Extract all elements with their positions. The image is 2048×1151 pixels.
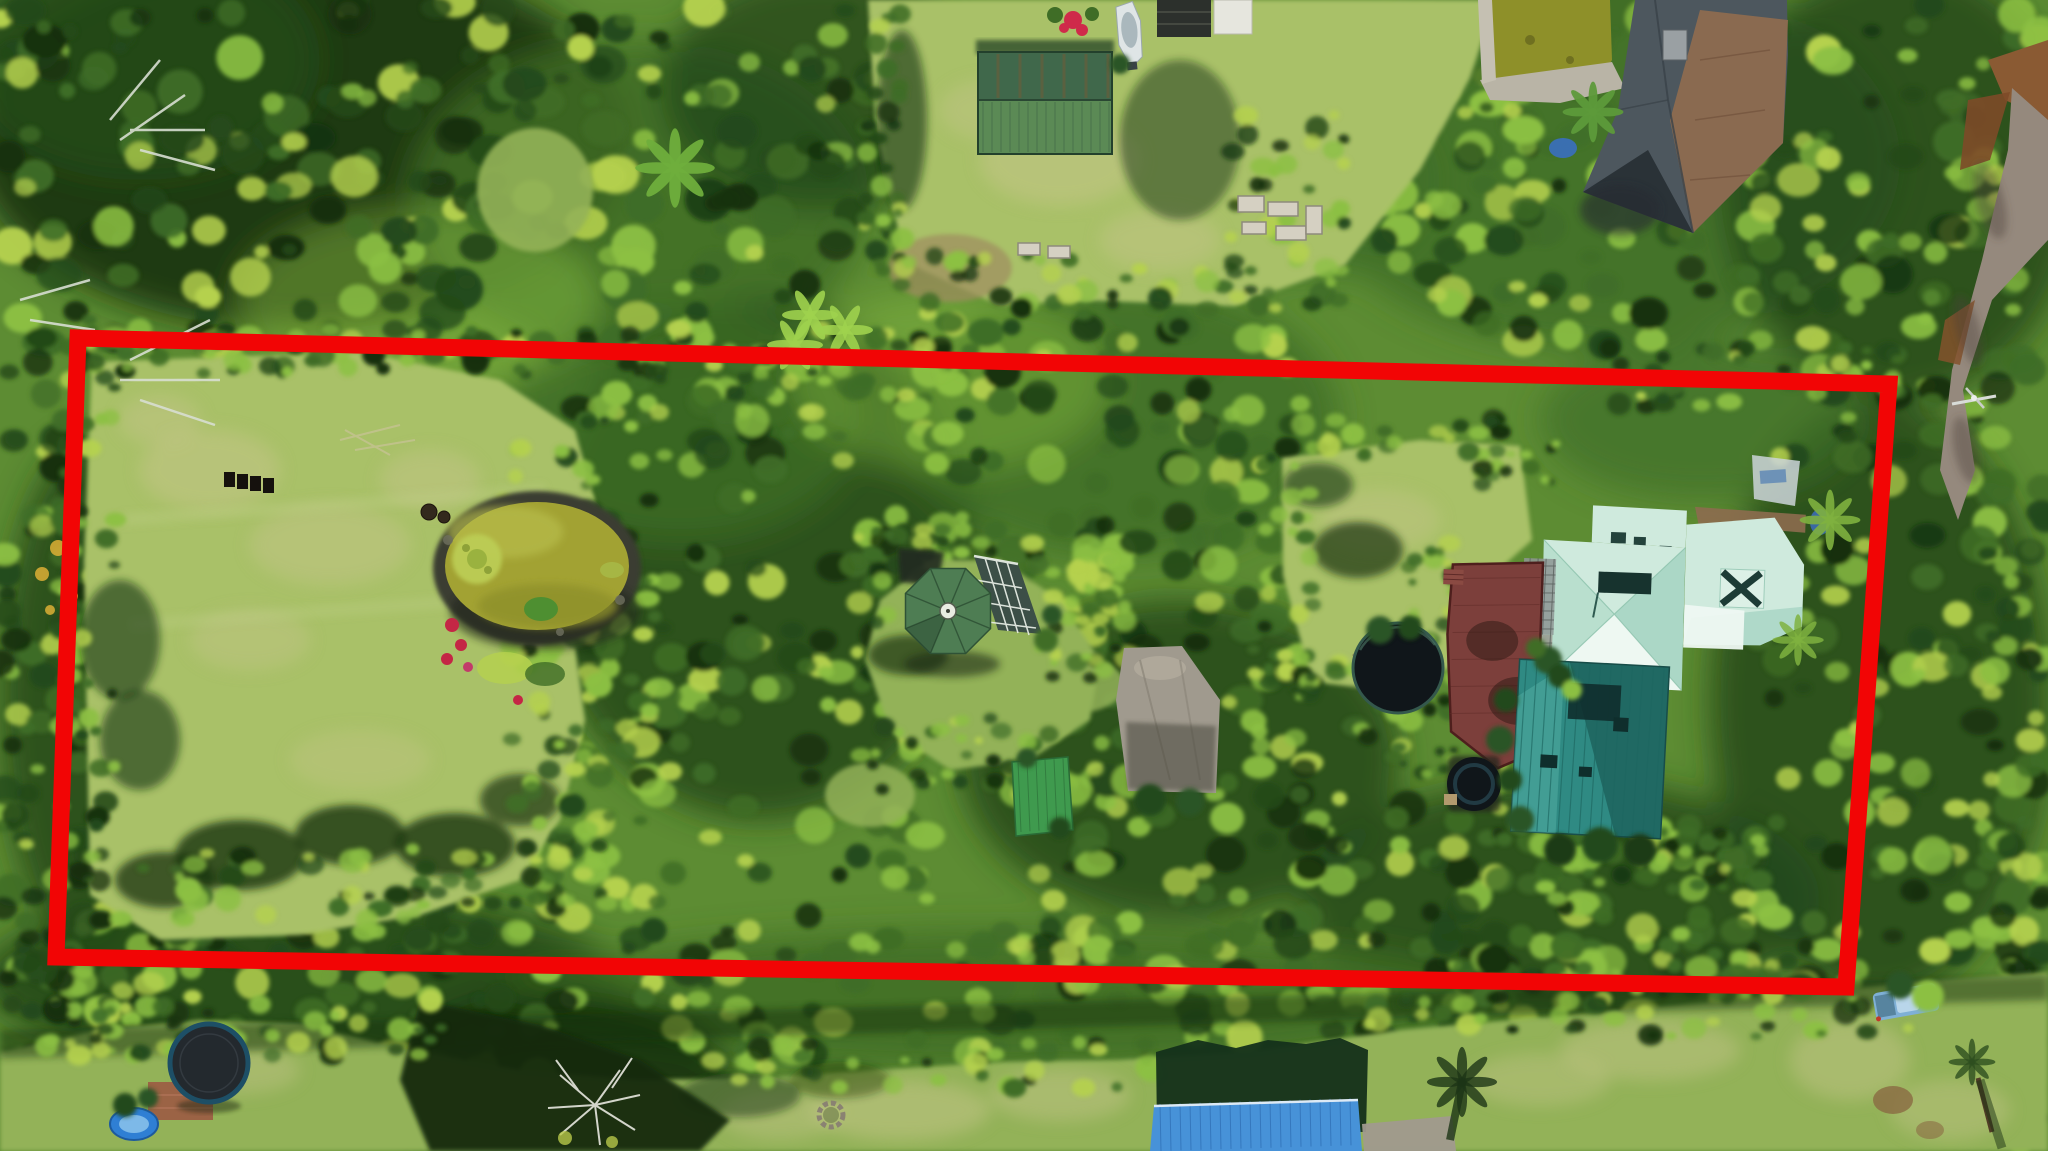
foliage-blob bbox=[1594, 907, 1614, 924]
foliage-blob bbox=[930, 1074, 947, 1086]
foliage-blob bbox=[781, 374, 799, 391]
foliage-blob bbox=[1242, 755, 1276, 778]
foliage-blob bbox=[1754, 1003, 1776, 1020]
foliage-blob bbox=[718, 707, 741, 725]
mow-patch bbox=[1100, 210, 1220, 270]
foliage-blob bbox=[1833, 999, 1859, 1024]
foliage-blob bbox=[654, 622, 671, 634]
foliage-blob bbox=[1270, 506, 1288, 523]
foliage-blob bbox=[1095, 662, 1114, 679]
foliage-blob bbox=[1292, 759, 1317, 779]
foliage-blob bbox=[152, 997, 174, 1016]
stair-step bbox=[1443, 579, 1463, 580]
foliage-blob bbox=[2015, 648, 2043, 670]
foliage-blob bbox=[1983, 772, 1999, 787]
foliage-blob bbox=[919, 893, 935, 904]
tree-shadow bbox=[100, 690, 180, 790]
foliage-blob bbox=[1320, 1019, 1346, 1040]
foliage-blob bbox=[694, 435, 731, 469]
foliage-blob bbox=[358, 89, 377, 106]
foliage-blob bbox=[1636, 392, 1647, 400]
foliage-blob bbox=[2016, 816, 2034, 830]
foliage-blob bbox=[1169, 893, 1187, 906]
foliage-blob bbox=[1221, 696, 1236, 708]
foliage-blob bbox=[807, 142, 831, 161]
foliage-blob bbox=[254, 245, 268, 258]
foliage-blob bbox=[1911, 669, 1926, 680]
foliage-blob bbox=[873, 572, 892, 589]
foliage-blob bbox=[1677, 256, 1706, 281]
foliage-blob bbox=[255, 905, 276, 924]
bush bbox=[1047, 7, 1063, 23]
foliage-blob bbox=[860, 120, 875, 132]
foliage-blob bbox=[1898, 49, 1918, 63]
foliage-blob bbox=[1840, 412, 1856, 423]
foliage-blob bbox=[95, 529, 118, 548]
foliage-blob bbox=[875, 718, 896, 737]
foliage-blob bbox=[237, 177, 267, 201]
foliage-blob bbox=[1450, 747, 1459, 753]
foliage-blob bbox=[396, 910, 412, 925]
foliage-blob bbox=[871, 527, 881, 536]
foliage-blob bbox=[1732, 355, 1746, 366]
foliage-blob bbox=[582, 93, 601, 107]
foliage-blob bbox=[1210, 802, 1244, 834]
gazebo-ground-shadow bbox=[904, 651, 1000, 677]
foliage-blob bbox=[1816, 147, 1841, 171]
foliage-blob bbox=[989, 287, 1012, 305]
foliage-blob bbox=[91, 1042, 110, 1059]
foliage-blob bbox=[1304, 598, 1321, 611]
foliage-blob bbox=[1838, 341, 1852, 354]
foliage-blob bbox=[658, 762, 682, 781]
foliage-blob bbox=[1002, 1078, 1026, 1098]
foliage-blob bbox=[851, 646, 864, 659]
foliage-blob bbox=[991, 723, 1012, 739]
foliage-blob bbox=[1136, 1038, 1154, 1051]
foliage-blob bbox=[1499, 465, 1513, 476]
foliage-blob bbox=[1803, 1021, 1828, 1040]
shed-roof-lower bbox=[978, 101, 1112, 154]
foliage-blob bbox=[630, 453, 650, 469]
gazebo-finial bbox=[946, 609, 950, 613]
foliage-blob bbox=[1399, 760, 1407, 767]
foliage-blob bbox=[1291, 396, 1311, 413]
foliage-blob bbox=[891, 79, 909, 96]
foliage-blob bbox=[108, 761, 120, 773]
foliage-blob bbox=[1290, 461, 1299, 470]
foliage-blob bbox=[303, 853, 314, 861]
foliage-blob bbox=[1363, 1017, 1376, 1030]
foliage-blob bbox=[1107, 290, 1118, 301]
foliage-blob bbox=[1425, 546, 1437, 556]
foliage-blob bbox=[880, 387, 897, 403]
foliage-blob bbox=[893, 278, 910, 291]
foliage-blob bbox=[1986, 739, 2003, 751]
foliage-blob bbox=[1288, 822, 1327, 851]
foliage-blob bbox=[1929, 214, 1971, 245]
red-flowers bbox=[441, 653, 453, 665]
foliage-blob bbox=[1341, 423, 1365, 445]
foliage-blob bbox=[1914, 836, 1952, 874]
foliage-blob bbox=[558, 794, 586, 817]
foliage-blob bbox=[1581, 250, 1602, 265]
foliage-blob bbox=[869, 132, 887, 144]
foliage-blob bbox=[385, 887, 408, 903]
foliage-blob bbox=[382, 320, 407, 339]
foliage-blob bbox=[984, 713, 998, 724]
foliage-blob bbox=[1943, 601, 1972, 627]
foliage-blob bbox=[862, 546, 884, 562]
foliage-blob bbox=[406, 844, 419, 855]
foliage-blob bbox=[1911, 564, 1943, 590]
foliage-blob bbox=[1535, 880, 1555, 894]
foliage-blob bbox=[739, 53, 760, 72]
foliage-blob bbox=[789, 270, 820, 300]
foliage-blob bbox=[202, 1009, 214, 1018]
foliage-blob bbox=[1742, 292, 1764, 313]
foliage-blob bbox=[554, 445, 569, 458]
foliage-blob bbox=[891, 228, 915, 250]
bush bbox=[1085, 7, 1099, 21]
foliage-blob bbox=[956, 408, 975, 423]
foliage-blob bbox=[1305, 672, 1317, 682]
foliage-blob bbox=[21, 1002, 43, 1019]
foliage-blob bbox=[554, 73, 569, 83]
rim-rock bbox=[443, 535, 453, 545]
foliage-blob bbox=[1976, 58, 1990, 71]
foliage-blob bbox=[1028, 864, 1050, 883]
foliage-blob bbox=[534, 704, 549, 716]
foliage-blob bbox=[264, 181, 292, 201]
foliage-blob bbox=[934, 523, 952, 536]
foliage-blob bbox=[1322, 432, 1334, 444]
foliage-blob bbox=[1258, 523, 1274, 536]
foliage-blob bbox=[1458, 929, 1481, 948]
foliage-blob bbox=[30, 663, 59, 689]
foliage-blob bbox=[866, 33, 888, 54]
foliage-blob bbox=[1737, 266, 1760, 284]
foliage-blob bbox=[1484, 225, 1524, 256]
foliage-blob bbox=[835, 699, 863, 724]
foliage-blob bbox=[1057, 284, 1081, 304]
foliage-blob bbox=[1300, 487, 1319, 500]
foliage-blob bbox=[107, 264, 139, 287]
foliage-blob bbox=[76, 731, 88, 740]
foliage-blob bbox=[175, 873, 185, 883]
foliage-blob bbox=[1241, 710, 1267, 733]
foliage-blob bbox=[1976, 586, 1996, 602]
foliage-blob bbox=[877, 59, 898, 79]
shrub-foliage bbox=[558, 1131, 572, 1145]
foliage-blob bbox=[1310, 930, 1338, 950]
pink-flowers bbox=[463, 662, 473, 672]
foliage-blob bbox=[1028, 555, 1048, 574]
foliage-blob bbox=[889, 40, 905, 52]
foliage-blob bbox=[484, 896, 502, 910]
foliage-blob bbox=[108, 383, 121, 391]
foliage-blob bbox=[876, 784, 889, 795]
foliage-blob bbox=[1890, 441, 1916, 459]
foliage-blob bbox=[845, 844, 871, 869]
foliage-blob bbox=[738, 370, 753, 384]
foliage-blob bbox=[1257, 621, 1271, 633]
foliage-blob bbox=[1882, 233, 1900, 249]
foliage-blob bbox=[1812, 286, 1840, 314]
foliage-blob bbox=[1886, 971, 1914, 999]
foliage-blob bbox=[1750, 1033, 1762, 1041]
foliage-blob bbox=[19, 126, 41, 143]
foliage-blob bbox=[1332, 792, 1347, 806]
foliage-blob bbox=[1398, 616, 1422, 640]
foliage-blob bbox=[897, 388, 916, 401]
foliage-blob bbox=[1506, 1025, 1518, 1033]
foliage-blob bbox=[1912, 885, 1930, 901]
foliage-blob bbox=[1472, 459, 1493, 477]
foliage-blob bbox=[68, 1017, 81, 1027]
foliage-blob bbox=[1795, 683, 1812, 694]
foliage-blob bbox=[1276, 154, 1298, 174]
foliage-blob bbox=[630, 376, 650, 392]
foliage-blob bbox=[660, 861, 686, 885]
foliage-blob bbox=[803, 424, 827, 440]
foliage-blob bbox=[1816, 1030, 1827, 1037]
foliage-blob bbox=[975, 737, 983, 744]
foliage-blob bbox=[1629, 297, 1668, 329]
foliage-blob bbox=[641, 703, 659, 717]
foliage-blob bbox=[176, 913, 195, 926]
foliage-blob bbox=[870, 748, 880, 758]
foliage-blob bbox=[1490, 424, 1511, 439]
foliage-blob bbox=[265, 1029, 279, 1042]
foliage-blob bbox=[1635, 328, 1667, 352]
foliage-blob bbox=[1042, 264, 1062, 282]
palm-tree bbox=[1427, 1047, 1497, 1117]
foliage-blob bbox=[1408, 1015, 1419, 1022]
foliage-blob bbox=[1096, 516, 1115, 534]
foliage-blob bbox=[817, 376, 832, 386]
foliage-blob bbox=[1636, 1005, 1654, 1020]
foliage-blob bbox=[6, 818, 21, 831]
foliage-blob bbox=[125, 142, 155, 171]
foliage-blob bbox=[1995, 597, 2020, 620]
foliage-blob bbox=[503, 733, 521, 746]
foliage-blob bbox=[464, 878, 483, 892]
foliage-blob bbox=[699, 830, 722, 845]
foliage-blob bbox=[317, 86, 341, 108]
foliage-blob bbox=[874, 258, 886, 269]
foliage-blob bbox=[345, 215, 372, 239]
foliage-blob bbox=[264, 1048, 281, 1063]
foliage-blob bbox=[656, 449, 672, 460]
foliage-blob bbox=[1607, 393, 1631, 416]
foliage-blob bbox=[592, 155, 640, 193]
foliage-blob bbox=[1776, 767, 1801, 789]
foliage-blob bbox=[1862, 347, 1872, 355]
foliage-blob bbox=[585, 672, 613, 697]
foliage-blob bbox=[532, 816, 548, 830]
foliage-blob bbox=[1195, 883, 1215, 903]
shrub-foliage bbox=[606, 1136, 618, 1148]
foliage-blob bbox=[43, 1034, 60, 1046]
foliage-blob bbox=[846, 1057, 859, 1069]
foliage-blob bbox=[967, 931, 999, 960]
foliage-blob bbox=[1582, 827, 1618, 863]
foliage-blob bbox=[515, 839, 537, 858]
foliage-blob bbox=[1891, 355, 1904, 364]
foliage-blob bbox=[1676, 815, 1701, 838]
foliage-blob bbox=[1262, 288, 1275, 298]
foliage-blob bbox=[1447, 893, 1481, 924]
foliage-blob bbox=[1150, 392, 1174, 415]
round-pool bbox=[1353, 623, 1443, 713]
foliage-blob bbox=[802, 404, 817, 418]
foliage-blob bbox=[818, 666, 834, 678]
foliage-blob bbox=[1049, 817, 1071, 839]
foliage-blob bbox=[1041, 890, 1066, 911]
foliage-blob bbox=[948, 251, 970, 268]
foliage-blob bbox=[1486, 992, 1501, 1004]
foliage-blob bbox=[1813, 759, 1842, 786]
garden-bed bbox=[1018, 243, 1040, 255]
foliage-blob bbox=[1544, 834, 1576, 866]
foliage-blob bbox=[1325, 413, 1346, 427]
foliage-blob bbox=[1439, 836, 1469, 860]
foliage-blob bbox=[1878, 847, 1907, 873]
foliage-blob bbox=[603, 811, 616, 822]
foliage-blob bbox=[1542, 479, 1550, 485]
foliage-blob bbox=[771, 257, 797, 275]
tree-shadow bbox=[1120, 60, 1240, 220]
foliage-blob bbox=[1778, 953, 1798, 970]
aerial-photo: Aerial view of a wooded tropical propert… bbox=[0, 0, 2048, 1151]
foliage-blob bbox=[242, 861, 265, 876]
foliage-blob bbox=[1086, 761, 1103, 776]
foliage-blob bbox=[1264, 663, 1275, 674]
foliage-blob bbox=[1046, 671, 1060, 681]
foliage-blob bbox=[1980, 657, 2010, 685]
foliage-blob bbox=[867, 87, 884, 100]
foliage-blob bbox=[596, 897, 618, 911]
foliage-blob bbox=[417, 900, 431, 909]
foliage-blob bbox=[875, 214, 891, 227]
foliage-blob bbox=[1298, 684, 1320, 702]
foliage-blob bbox=[1944, 892, 1971, 913]
foliage-blob bbox=[1444, 432, 1456, 443]
foliage-blob bbox=[1110, 644, 1122, 652]
foliage-blob bbox=[1802, 215, 1825, 232]
foliage-blob bbox=[1295, 530, 1315, 544]
foliage-blob bbox=[1846, 172, 1871, 192]
foliage-blob bbox=[924, 453, 949, 475]
foliage-blob bbox=[1422, 903, 1441, 922]
foliage-blob bbox=[262, 93, 284, 114]
foliage-blob bbox=[617, 302, 659, 332]
foliage-blob bbox=[368, 252, 401, 284]
foliage-blob bbox=[1921, 394, 1942, 409]
foliage-blob bbox=[1582, 869, 1596, 878]
foliage-blob bbox=[338, 15, 359, 34]
foliage-blob bbox=[1218, 773, 1237, 792]
garden-bed bbox=[1238, 196, 1264, 212]
foliage-blob bbox=[881, 866, 909, 889]
foliage-blob bbox=[197, 8, 214, 23]
foliage-blob bbox=[1050, 941, 1079, 970]
foliage-blob bbox=[381, 292, 410, 313]
foliage-blob bbox=[935, 367, 949, 380]
foliage-blob bbox=[1110, 54, 1130, 74]
foliage-blob bbox=[568, 724, 583, 736]
foliage-blob bbox=[1002, 319, 1021, 336]
foliage-blob bbox=[907, 1031, 927, 1049]
foliage-blob bbox=[1302, 582, 1320, 595]
garden-foliage bbox=[477, 652, 533, 684]
foliage-blob bbox=[1989, 902, 2016, 928]
foliage-blob bbox=[1095, 588, 1119, 609]
foliage-blob bbox=[584, 856, 602, 869]
foliage-blob bbox=[2014, 539, 2045, 566]
foliage-blob bbox=[181, 887, 208, 911]
lily-pad bbox=[484, 566, 492, 574]
foliage-blob bbox=[1959, 77, 1976, 90]
foliage-blob bbox=[906, 822, 945, 850]
foliage-blob bbox=[1488, 444, 1506, 458]
foliage-blob bbox=[877, 101, 899, 123]
foliage-blob bbox=[731, 1074, 748, 1086]
foliage-blob bbox=[1205, 480, 1240, 515]
foliage-blob bbox=[955, 715, 970, 727]
blue-tarp bbox=[1549, 138, 1577, 158]
foliage-blob bbox=[113, 42, 128, 53]
foliage-blob bbox=[686, 991, 710, 1008]
foliage-blob bbox=[1053, 648, 1062, 656]
foliage-blob bbox=[461, 898, 475, 907]
foliage-blob bbox=[1185, 377, 1211, 402]
foliage-blob bbox=[1693, 283, 1716, 299]
foliage-blob bbox=[1667, 884, 1680, 895]
foliage-blob bbox=[633, 627, 653, 642]
foliage-blob bbox=[1479, 102, 1493, 113]
mow-patch bbox=[250, 505, 410, 585]
foliage-blob bbox=[1435, 747, 1445, 756]
foliage-blob bbox=[795, 903, 821, 928]
foliage-blob bbox=[1846, 298, 1865, 315]
foliage-blob bbox=[1104, 405, 1134, 431]
foliage-blob bbox=[867, 760, 879, 770]
foliage-blob bbox=[1706, 1017, 1720, 1026]
foliage-blob bbox=[698, 330, 715, 345]
foliage-blob bbox=[286, 1032, 310, 1054]
foliage-blob bbox=[282, 133, 307, 151]
foliage-blob bbox=[1624, 834, 1656, 866]
foliage-blob bbox=[1494, 688, 1518, 712]
foliage-blob bbox=[1043, 1042, 1057, 1053]
foliage-blob bbox=[1754, 845, 1769, 857]
foliage-blob bbox=[1184, 633, 1210, 651]
foliage-blob bbox=[1485, 866, 1514, 892]
foliage-blob bbox=[1768, 815, 1785, 831]
foliage-blob bbox=[1134, 784, 1166, 816]
foliage-blob bbox=[436, 1024, 448, 1032]
foliage-blob bbox=[15, 912, 37, 930]
foliage-blob bbox=[1259, 178, 1273, 191]
foliage-blob bbox=[1274, 928, 1314, 959]
foliage-blob bbox=[1429, 855, 1449, 872]
foliage-blob bbox=[508, 469, 523, 483]
foliage-blob bbox=[1391, 743, 1406, 753]
foliage-blob bbox=[1163, 502, 1195, 532]
foliage-blob bbox=[462, 868, 476, 880]
